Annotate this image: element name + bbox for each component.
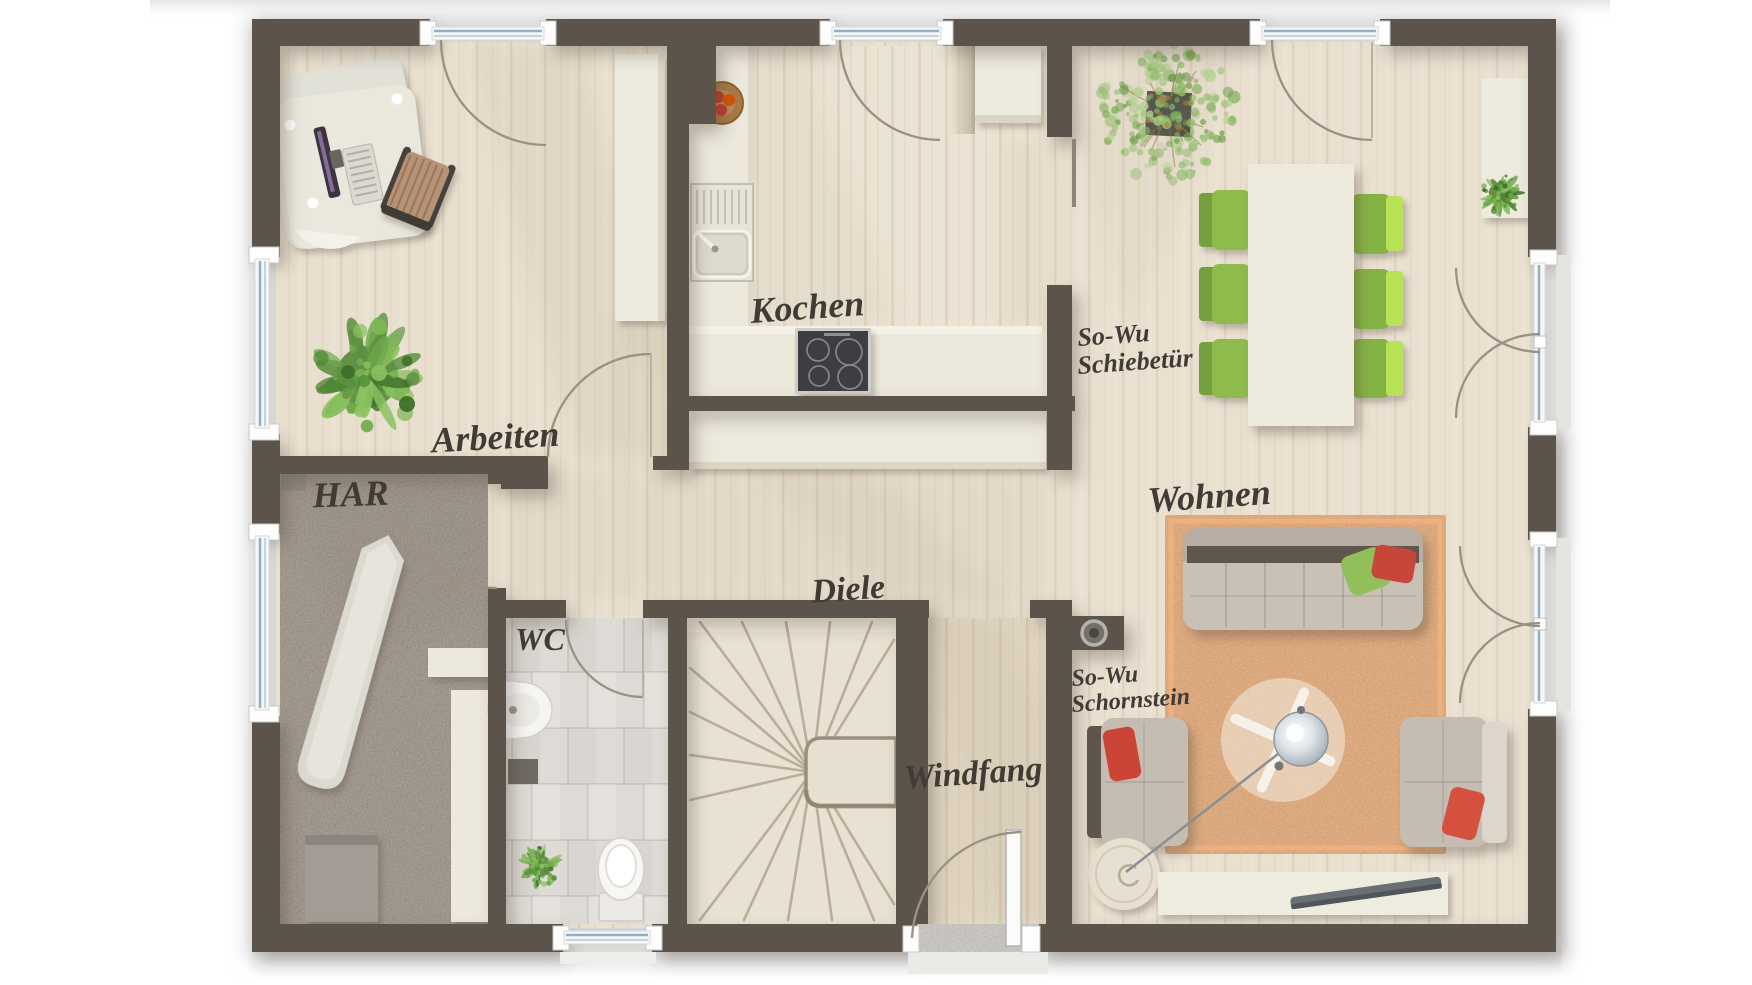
svg-text:WC: WC: [515, 621, 565, 657]
svg-text:Arbeiten: Arbeiten: [428, 414, 560, 461]
svg-text:Kochen: Kochen: [748, 283, 866, 331]
svg-text:HAR: HAR: [311, 473, 389, 516]
svg-text:Diele: Diele: [809, 569, 886, 611]
